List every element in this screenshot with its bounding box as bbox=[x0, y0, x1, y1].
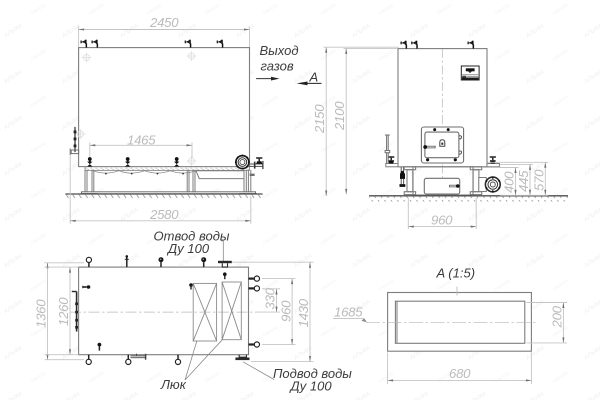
svg-text:2150: 2150 bbox=[312, 104, 327, 134]
svg-text:1360: 1360 bbox=[34, 299, 49, 328]
svg-text:Ду 100: Ду 100 bbox=[166, 241, 210, 256]
svg-text:400: 400 bbox=[502, 171, 517, 193]
svg-text:1685: 1685 bbox=[334, 305, 363, 320]
svg-text:A (1:5): A (1:5) bbox=[436, 266, 476, 281]
svg-text:Люк: Люк bbox=[160, 377, 187, 392]
svg-text:330: 330 bbox=[263, 287, 278, 309]
svg-text:960: 960 bbox=[431, 213, 453, 228]
svg-text:1430: 1430 bbox=[296, 298, 311, 327]
svg-text:445: 445 bbox=[516, 170, 531, 192]
svg-text:Выход: Выход bbox=[260, 43, 299, 58]
svg-text:A: A bbox=[309, 70, 319, 85]
svg-text:2450: 2450 bbox=[149, 15, 179, 30]
svg-text:960: 960 bbox=[278, 300, 293, 322]
svg-text:1465: 1465 bbox=[127, 132, 156, 147]
svg-text:1260: 1260 bbox=[56, 297, 71, 326]
svg-text:2580: 2580 bbox=[149, 207, 179, 222]
svg-text:Ду 100: Ду 100 bbox=[289, 379, 333, 394]
svg-text:200: 200 bbox=[550, 305, 565, 328]
svg-text:2100: 2100 bbox=[332, 101, 347, 131]
svg-text:газов: газов bbox=[261, 59, 294, 74]
svg-text:680: 680 bbox=[449, 366, 471, 381]
svg-text:570: 570 bbox=[531, 169, 546, 191]
